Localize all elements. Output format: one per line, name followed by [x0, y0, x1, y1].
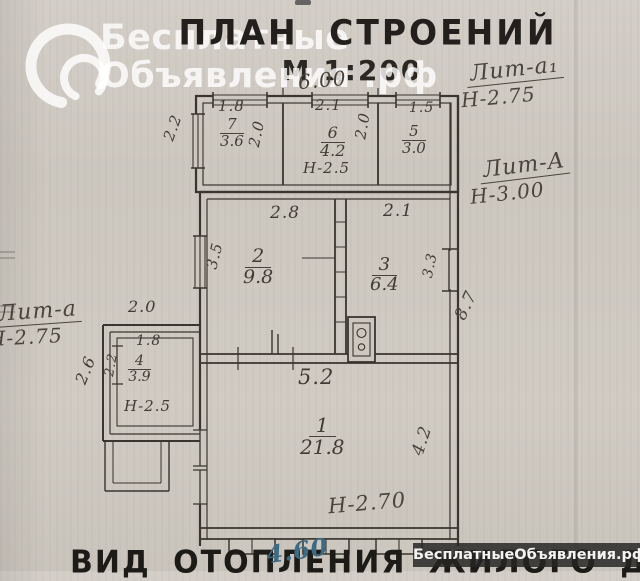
room-1-number: 1	[309, 415, 336, 437]
dim-room7-width: 1.8	[218, 99, 245, 115]
room-2-number: 2	[245, 247, 271, 268]
room-7-label: 7 3.6	[220, 117, 244, 150]
dim-corridor: 5.2	[298, 366, 334, 388]
room-1-label: 1 21.8	[300, 415, 345, 458]
dim-room4-width: 1.8	[136, 334, 161, 349]
room-2-area: 9.8	[243, 268, 273, 288]
room-6-label: 6 4.2	[320, 125, 345, 160]
room-6-area: 4.2	[320, 143, 345, 160]
room-4-area: 3.9	[128, 370, 150, 385]
room-7-area: 3.6	[220, 134, 244, 150]
room-5-label: 5 3.0	[402, 124, 426, 157]
height-room4: Н-2.5	[124, 399, 171, 415]
room-4-label: 4 3.9	[128, 354, 151, 384]
room-2-label: 2 9.8	[243, 247, 273, 288]
dim-annex-width: 2.0	[128, 299, 156, 316]
page-title: ПЛАН СТРОЕНИЙ	[88, 12, 640, 53]
site-badge: БесплатныеОбъявления.рф	[413, 543, 640, 567]
room-3-number: 3	[372, 256, 397, 276]
height-room6: Н-2.5	[303, 161, 350, 177]
dim-room3-width: 2.1	[383, 203, 413, 221]
room-1-area: 21.8	[300, 437, 345, 458]
room-3-label: 3 6.4	[370, 256, 399, 295]
room-3-area: 6.4	[370, 276, 399, 295]
room-4-number: 4	[128, 354, 151, 370]
dim-room6-width: 2.1	[315, 98, 342, 114]
dim-room5-width: 1.5	[409, 101, 434, 116]
annotation-lit-a-height: Н-2.75	[0, 325, 63, 350]
scanned-page: { "watermark": { "line1": "Бесплатные", …	[0, 0, 640, 571]
dim-room2-width: 2.8	[270, 205, 300, 223]
annotation-top-width: 6.00	[297, 68, 347, 93]
room-5-area: 3.0	[402, 141, 426, 157]
